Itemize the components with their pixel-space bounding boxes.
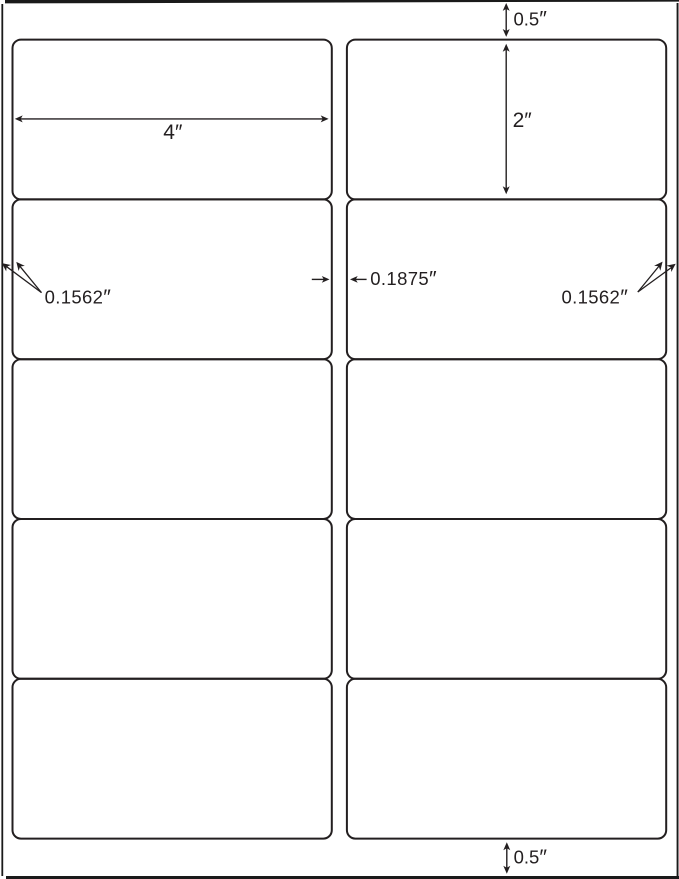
svg-text:0.1562″: 0.1562″ — [45, 285, 112, 309]
svg-text:0.5″: 0.5″ — [514, 7, 548, 31]
svg-text:2″: 2″ — [513, 109, 533, 132]
svg-text:0.1562″: 0.1562″ — [562, 285, 629, 309]
svg-text:4″: 4″ — [163, 121, 183, 144]
svg-text:0.1875″: 0.1875″ — [370, 267, 437, 291]
svg-text:0.5″: 0.5″ — [514, 845, 548, 869]
